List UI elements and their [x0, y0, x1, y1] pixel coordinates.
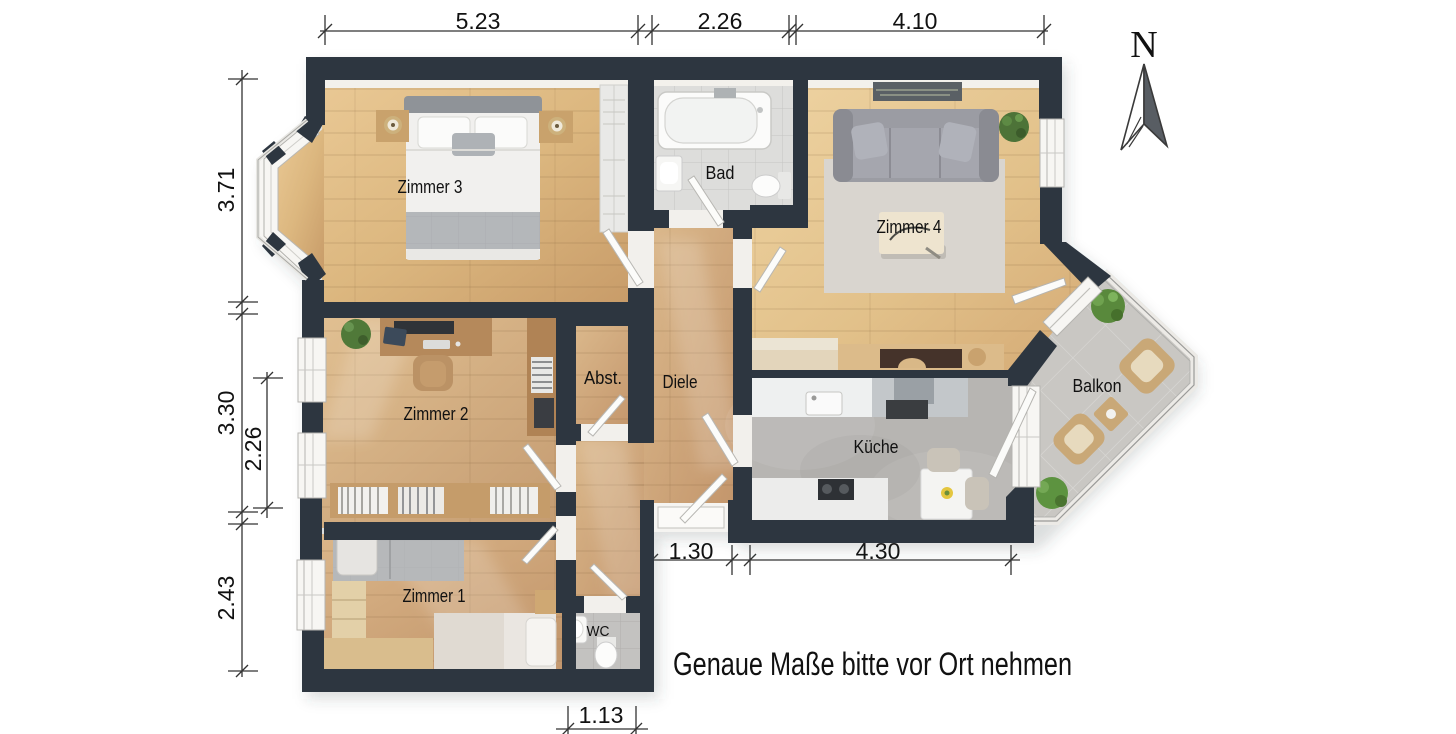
svg-text:5.23: 5.23 — [456, 8, 501, 34]
svg-text:4.10: 4.10 — [893, 8, 938, 34]
svg-text:2.26: 2.26 — [698, 8, 743, 34]
svg-text:Zimmer 3: Zimmer 3 — [398, 176, 463, 197]
svg-text:Diele: Diele — [663, 371, 698, 392]
svg-text:N: N — [1130, 24, 1157, 66]
svg-text:1.30: 1.30 — [669, 538, 714, 564]
svg-text:Bad: Bad — [706, 162, 735, 183]
svg-text:Zimmer 4: Zimmer 4 — [877, 216, 942, 237]
svg-text:Zimmer 2: Zimmer 2 — [404, 403, 469, 424]
svg-text:3.30: 3.30 — [213, 391, 239, 436]
svg-text:2.26: 2.26 — [240, 427, 266, 472]
svg-text:Küche: Küche — [854, 436, 899, 457]
svg-text:1.13: 1.13 — [579, 702, 624, 728]
svg-text:WC: WC — [587, 623, 610, 640]
svg-text:Genaue Maße bitte vor Ort nehm: Genaue Maße bitte vor Ort nehmen — [673, 646, 1072, 682]
svg-text:Abst.: Abst. — [584, 367, 622, 388]
svg-text:2.43: 2.43 — [213, 576, 239, 621]
svg-text:Balkon: Balkon — [1073, 375, 1122, 396]
svg-text:Zimmer 1: Zimmer 1 — [403, 585, 466, 606]
svg-text:3.71: 3.71 — [213, 168, 239, 213]
